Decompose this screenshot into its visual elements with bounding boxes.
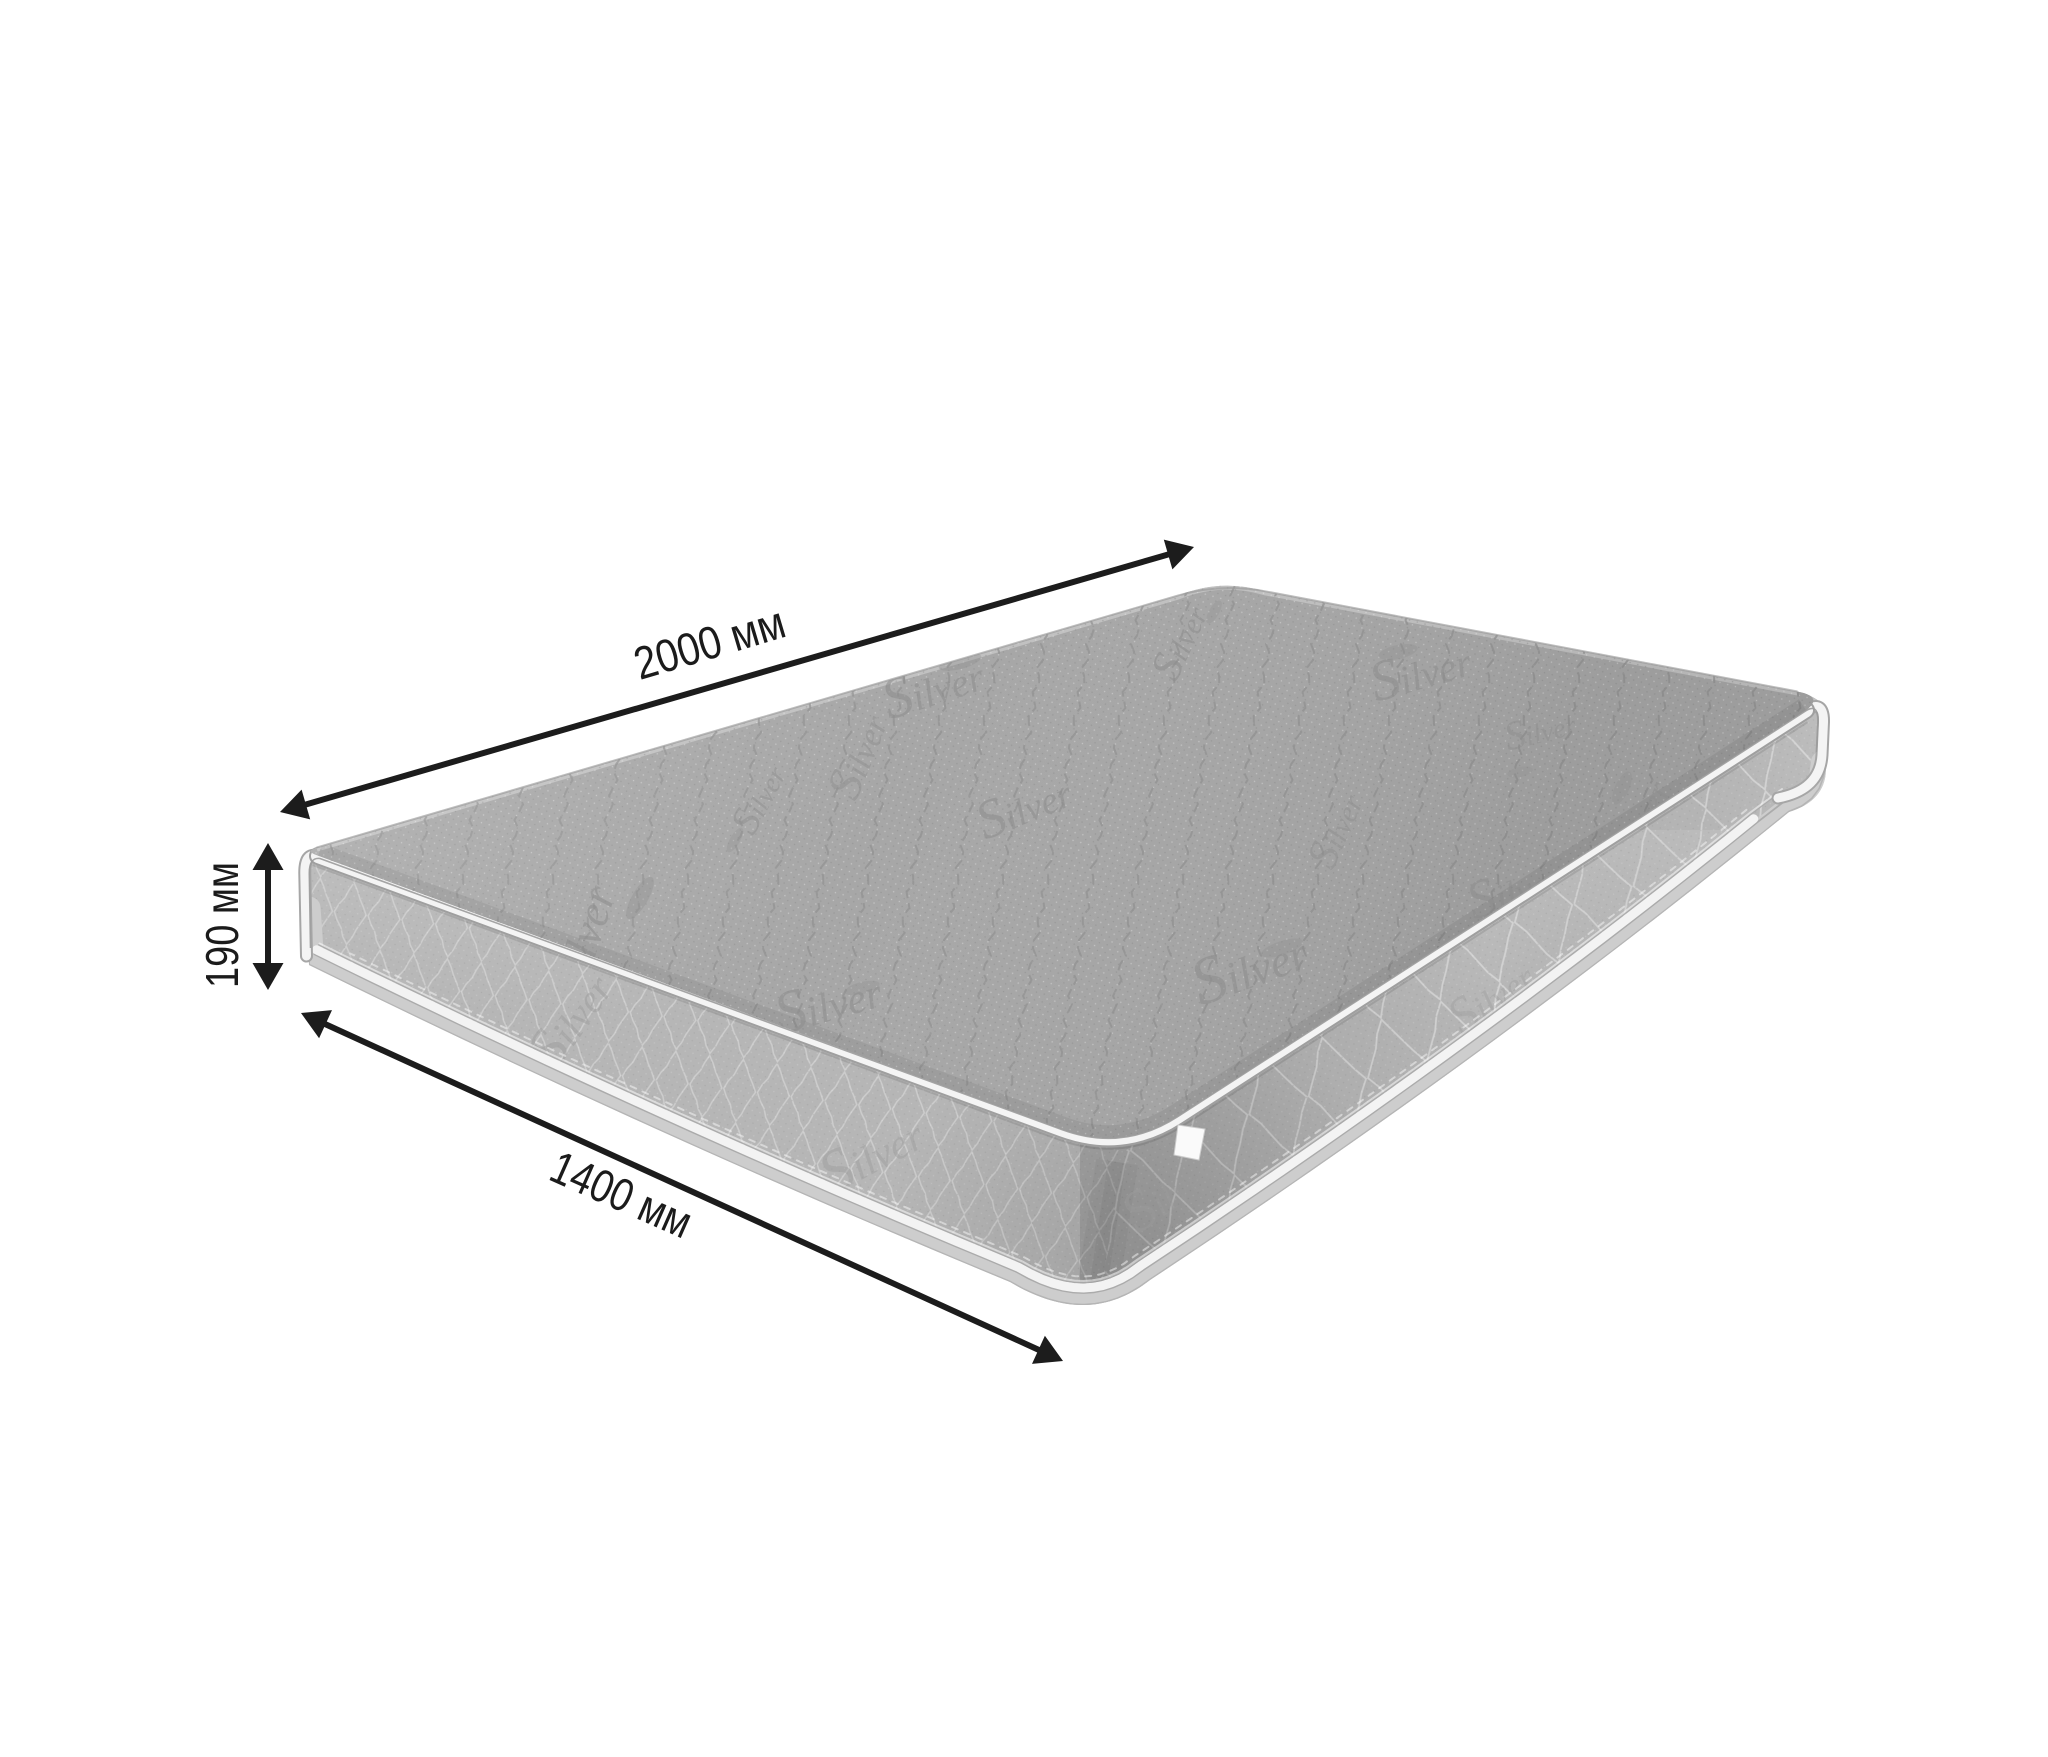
svg-text:190 мм: 190 мм xyxy=(196,862,248,988)
